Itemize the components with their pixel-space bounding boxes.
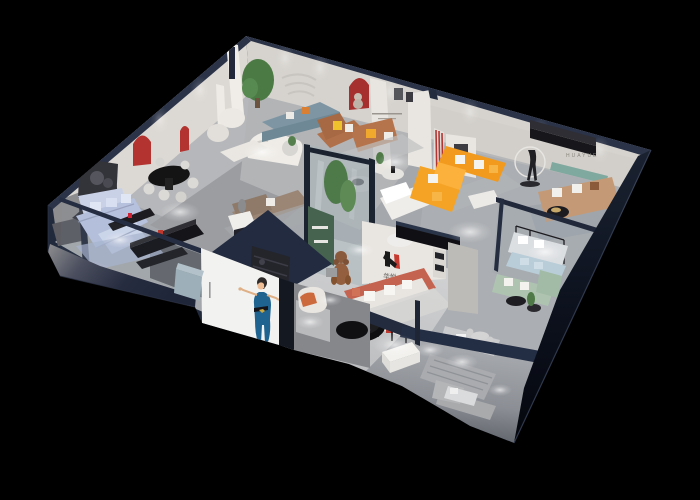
svg-text:HUAYUE: HUAYUE xyxy=(566,153,598,159)
